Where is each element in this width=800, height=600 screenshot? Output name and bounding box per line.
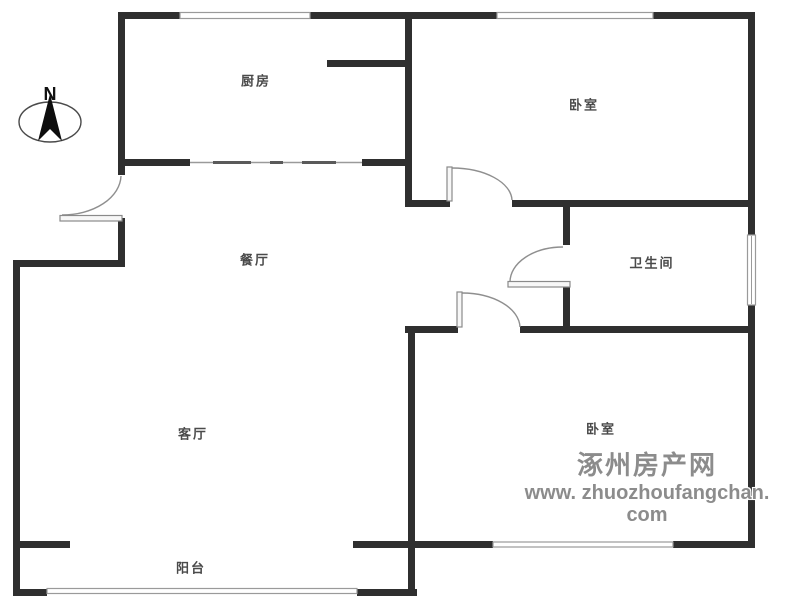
door-arc: [452, 168, 512, 200]
bathroom-door: [508, 247, 570, 287]
door-arc: [62, 176, 121, 215]
wall-segment: [362, 159, 412, 166]
windows: [47, 13, 756, 594]
pass-dash: [213, 161, 251, 164]
wall-segment: [118, 218, 125, 267]
wall-segment: [310, 12, 497, 19]
pass-dash: [270, 161, 283, 164]
bedroom-top-door: [447, 167, 512, 201]
door-leaf: [457, 292, 462, 327]
entry-door: [60, 176, 122, 221]
door-leaf: [508, 282, 570, 288]
room-label-kitchen: 厨房: [241, 71, 271, 90]
room-label-bathroom: 卫生间: [629, 253, 674, 272]
wall-segment: [13, 541, 70, 548]
wall-segment: [748, 305, 755, 548]
wall-segment: [563, 285, 570, 333]
wall-segment: [13, 589, 47, 596]
wall-segment: [118, 12, 125, 175]
walls: [13, 12, 755, 596]
kitchen-pass-opening: [190, 161, 362, 164]
window-kitchen-top: [180, 13, 310, 19]
wall-segment: [673, 541, 755, 548]
compass-icon: N: [19, 84, 81, 142]
wall-segment: [327, 60, 407, 67]
wall-segment: [520, 326, 755, 333]
room-label-bedroom-bottom: 卧室: [586, 419, 616, 438]
door-arc: [510, 247, 563, 282]
wall-segment: [353, 541, 415, 548]
wall-segment: [118, 12, 180, 19]
floorplan-canvas: N 厨房 卧室 餐厅 卫生间 客厅 卧室 阳台 涿州房产网 www. zhuoz…: [0, 0, 800, 600]
wall-segment: [408, 541, 493, 548]
room-label-dining: 餐厅: [240, 250, 270, 269]
compass-north-label: N: [44, 84, 57, 104]
wall-segment: [405, 200, 450, 207]
wall-segment: [118, 159, 190, 166]
wall-segment: [405, 12, 412, 207]
floorplan-drawing: N: [0, 0, 800, 600]
room-label-living: 客厅: [178, 424, 208, 443]
window-bedroom-top: [497, 13, 653, 19]
wall-segment: [563, 207, 570, 245]
wall-segment: [13, 260, 125, 267]
window-balcony-bottom: [47, 589, 357, 594]
bedroom-bottom-door: [457, 292, 520, 327]
pass-dash: [302, 161, 336, 164]
wall-segment: [405, 326, 458, 333]
door-leaf: [447, 167, 452, 201]
room-label-balcony: 阳台: [176, 558, 206, 577]
wall-segment: [512, 200, 755, 207]
door-leaf: [60, 216, 122, 222]
door-arc: [462, 293, 520, 327]
wall-segment: [408, 326, 415, 596]
wall-segment: [653, 12, 755, 19]
room-label-bedroom-top: 卧室: [569, 95, 599, 114]
window-bedroom-bottom: [493, 542, 673, 547]
